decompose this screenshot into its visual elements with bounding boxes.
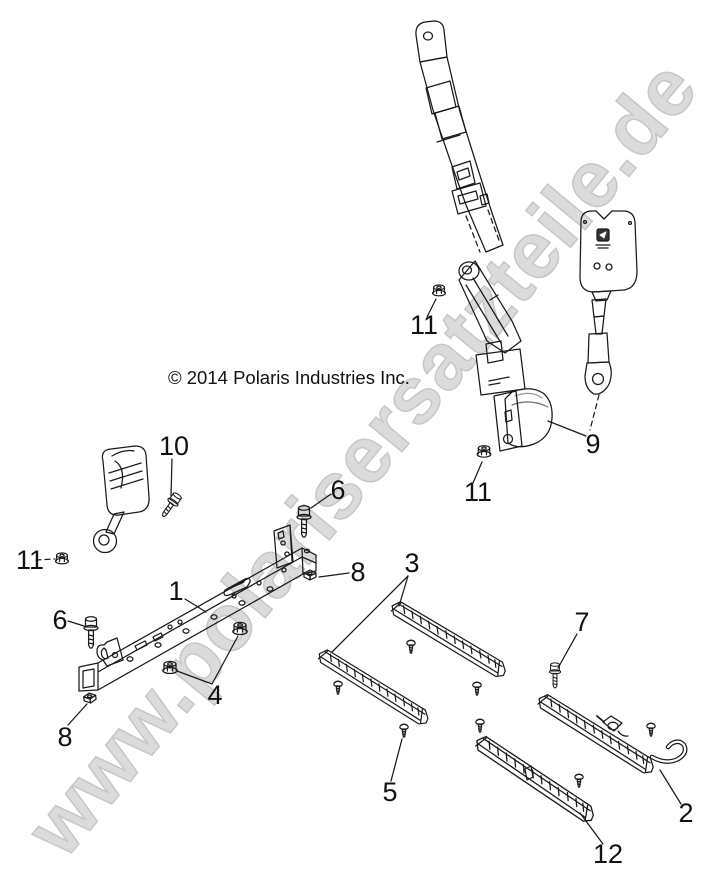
screw-b: [473, 682, 481, 695]
rail-end-bracket: [274, 525, 293, 568]
callout-2: 2: [678, 798, 693, 828]
retractor-pivot-arm: [459, 261, 521, 353]
rail-12-tab: [525, 766, 533, 780]
screw-12: [575, 774, 583, 787]
callout-8-right: 8: [350, 557, 365, 587]
exploded-parts-diagram: © 2014 Polaris Industries Inc.: [0, 0, 720, 891]
copyright-text: © 2014 Polaris Industries Inc.: [168, 367, 410, 388]
screw-c: [476, 719, 484, 732]
slide-rail-3a: [389, 597, 510, 680]
polaris-logo-icon: [596, 229, 610, 248]
callout-6-right: 6: [330, 475, 345, 505]
callout-10: 10: [159, 431, 189, 461]
belt-warning-tag: [476, 349, 525, 395]
screw-d: [647, 723, 655, 736]
slide-rail-2: [535, 690, 657, 777]
screw-e: [334, 681, 342, 694]
callout-3: 3: [404, 548, 419, 578]
bolt-6-left: [84, 617, 98, 648]
parts-diagram-canvas: www.polarisersatzteile.de: [0, 0, 720, 891]
callout-9: 9: [585, 429, 600, 459]
seat-belt-buckle-left: [94, 446, 150, 553]
callout-4: 4: [207, 680, 222, 710]
callout-11-left: 11: [16, 545, 44, 575]
callout-5: 5: [382, 777, 397, 807]
callout-6-left: 6: [52, 605, 67, 635]
slide-rail-3b: [316, 646, 432, 728]
callout-11-top: 11: [410, 310, 438, 340]
callout-11-bottom: 11: [464, 477, 492, 507]
callout-12: 12: [593, 839, 623, 869]
nut-4-right: [233, 622, 247, 634]
nut-11-left: [56, 553, 69, 564]
screw-5: [400, 724, 408, 737]
nut-11-top: [433, 285, 446, 296]
callout-1: 1: [168, 576, 183, 606]
bolt-6-right: [297, 506, 311, 537]
callout-7: 7: [574, 607, 589, 637]
retractor-spool: [494, 389, 552, 451]
seat-belt-retractor-assembly: [416, 21, 586, 451]
clipnut-8-right: [304, 570, 316, 580]
screw-a: [407, 640, 415, 653]
nut-4-left: [163, 661, 177, 673]
nut-11-bottom: [477, 446, 491, 457]
seat-belt-buckle-right: [580, 211, 637, 430]
clipnut-8-left: [83, 692, 96, 704]
callout-8-left: 8: [57, 722, 72, 752]
rail-2-release-handle: [652, 742, 685, 762]
seat-mount-rail: [79, 525, 316, 691]
